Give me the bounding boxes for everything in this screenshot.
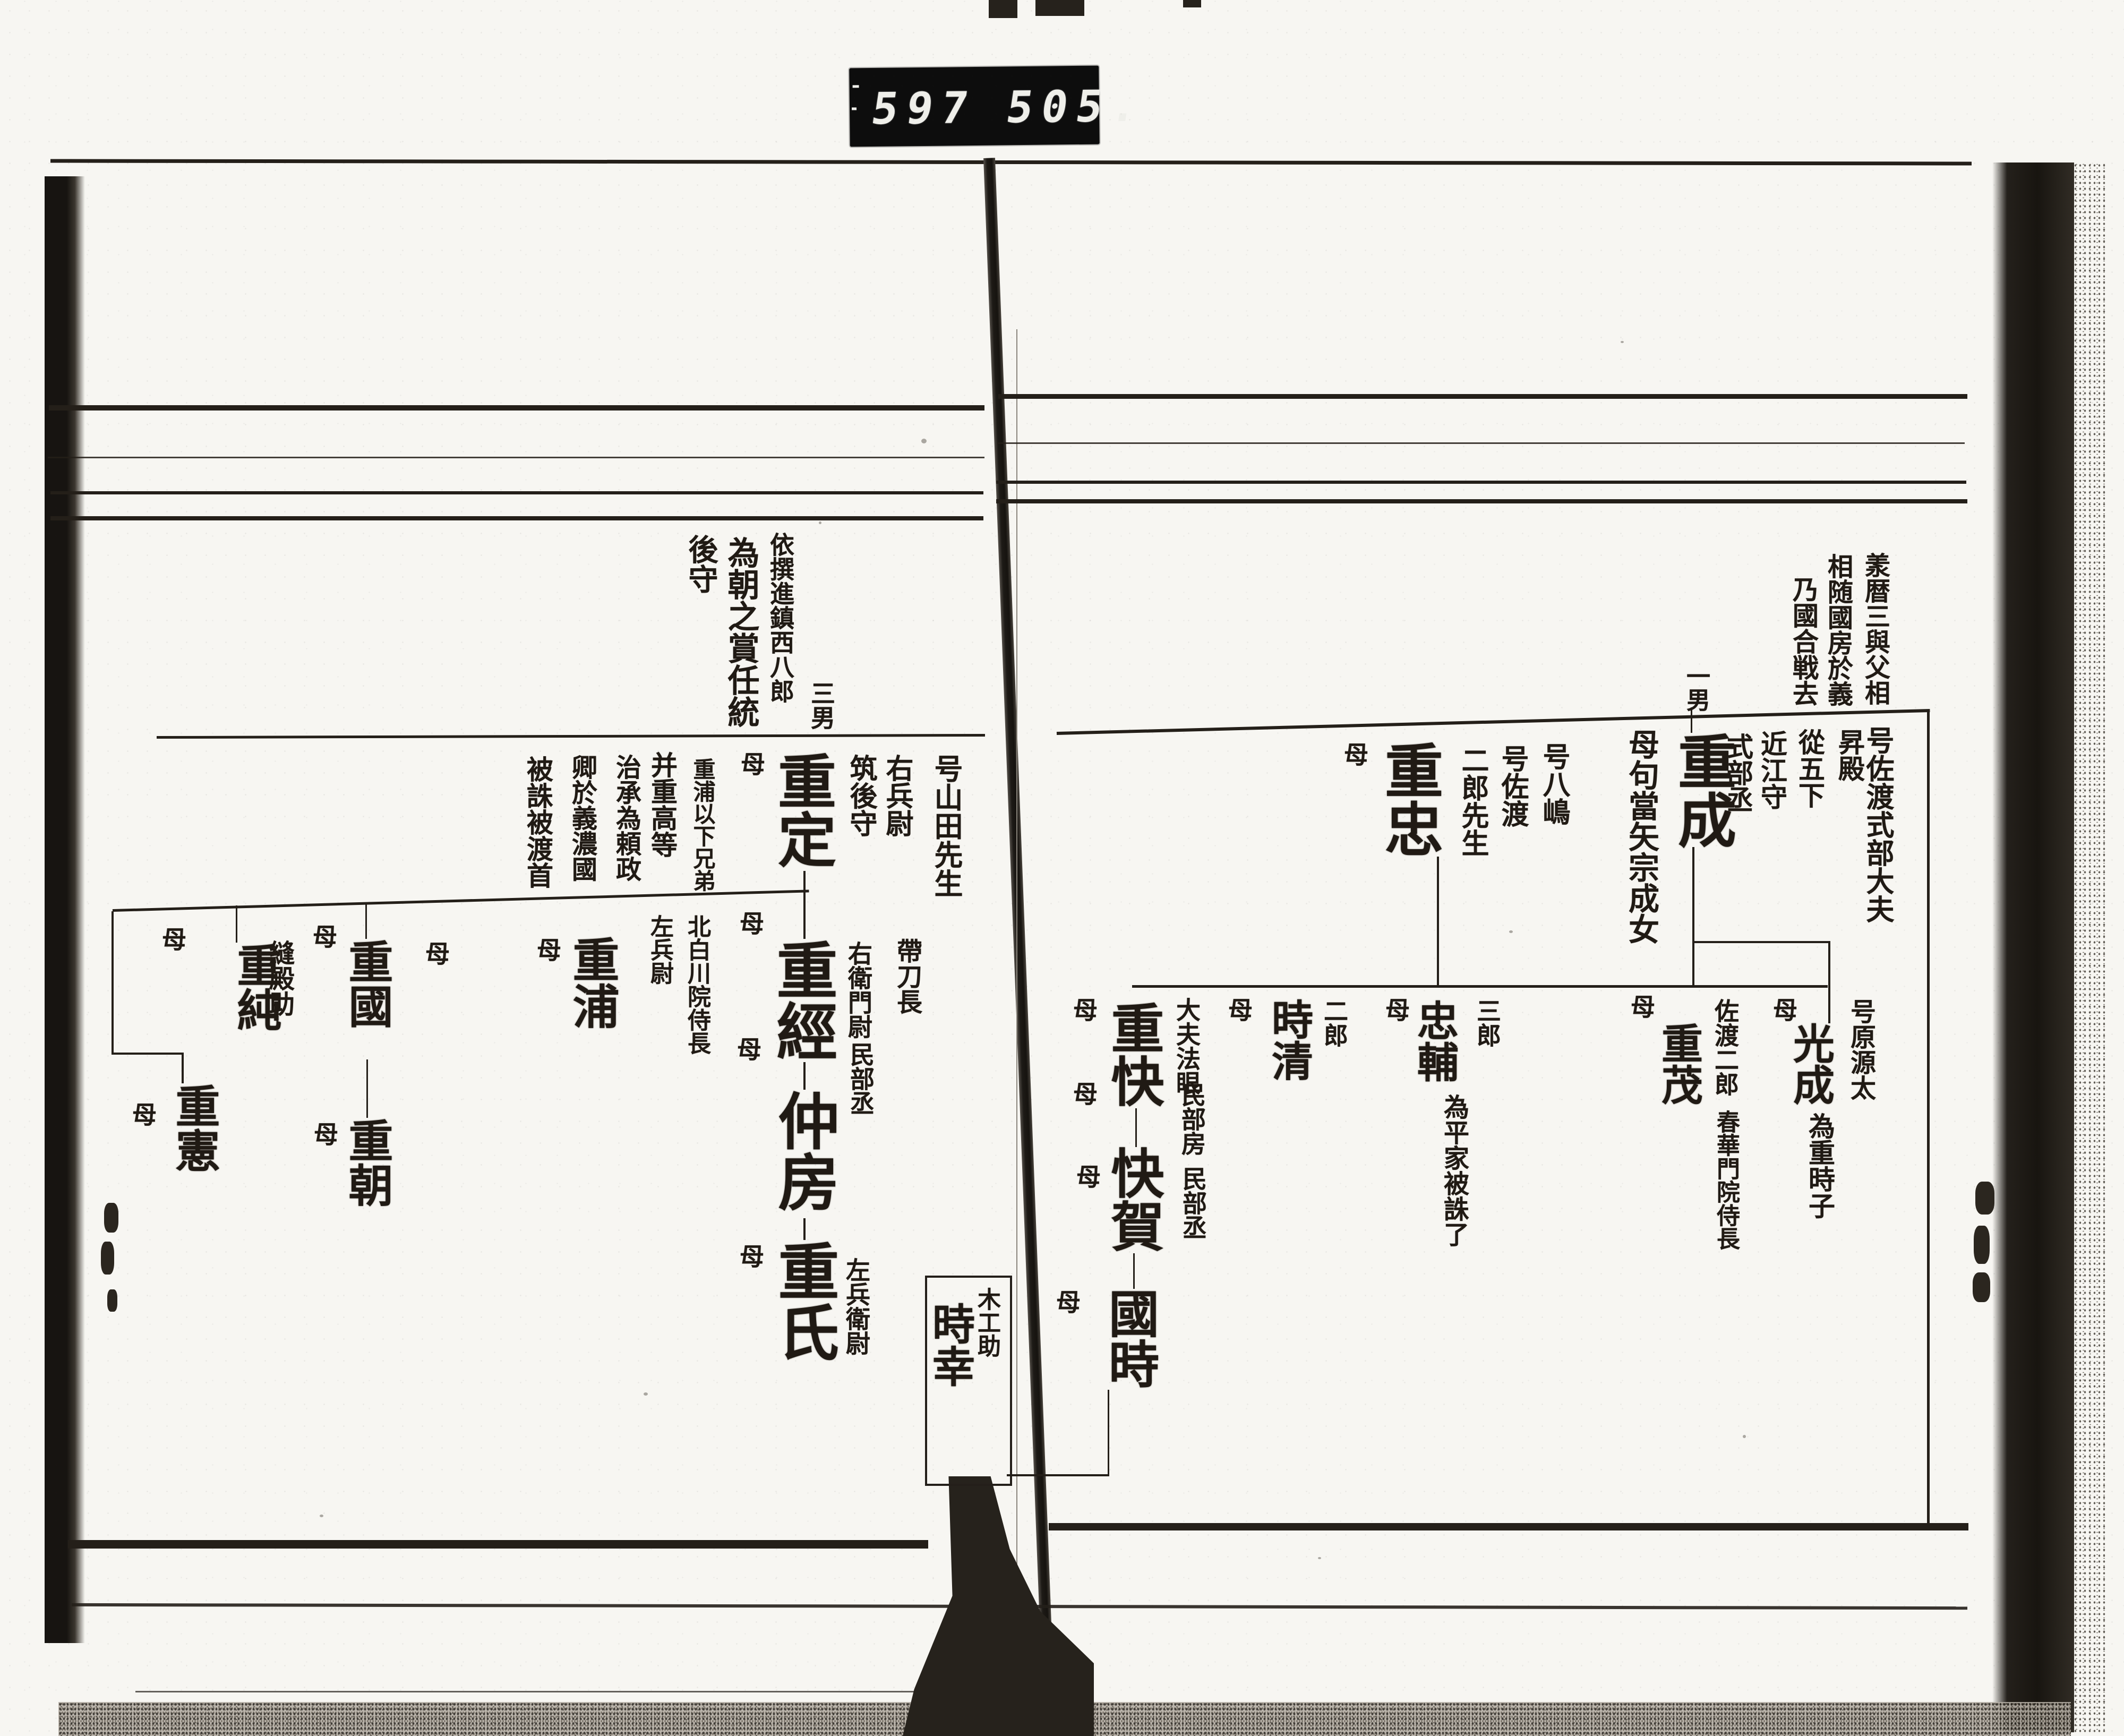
mother-mark: 母 xyxy=(1055,1289,1079,1314)
name-tokiyuki: 時幸 xyxy=(929,1302,972,1387)
father-title: 近江守 xyxy=(1759,730,1785,810)
top-edge-tab xyxy=(989,0,1017,18)
connector xyxy=(365,903,367,939)
left-book-edge-band xyxy=(45,176,85,1643)
note-tadasuke: 為平家被誅了 xyxy=(1441,1094,1467,1247)
title-shigesada: 筑後守 xyxy=(847,754,875,837)
name-tadasuke: 忠輔 xyxy=(1414,999,1455,1082)
rank-label: 一男 xyxy=(1684,664,1708,712)
note-col: 後守 xyxy=(686,534,716,594)
mother-mark: 母 xyxy=(1072,997,1096,1022)
title-shigeuji: 左兵衛尉 xyxy=(844,1258,869,1355)
connector-tokiyuki xyxy=(1007,1474,1109,1476)
counter-right-digits: 505. xyxy=(1003,81,1150,133)
edge-text-fragment xyxy=(101,1242,114,1275)
father-title: 昇殿 xyxy=(1836,729,1863,782)
connector xyxy=(803,1062,806,1090)
rank-label: 二郎 xyxy=(1322,998,1347,1047)
connector xyxy=(803,1218,806,1240)
executed-note-col: 卿於義濃國 xyxy=(569,754,595,882)
counter-stamp: 597 505. xyxy=(849,66,1100,147)
mother-mark: 母 xyxy=(738,1244,763,1268)
branch-mitsunari xyxy=(1693,941,1830,943)
edge-text-fragment xyxy=(1974,1226,1990,1264)
under-sheet-edge xyxy=(135,1691,964,1692)
frame-line-bottom xyxy=(68,1540,928,1549)
note-col: 為朝之賞任統 xyxy=(725,536,757,728)
mother-mark: 母 xyxy=(535,937,560,962)
alias-shigetada: 号佐渡 xyxy=(1498,745,1526,827)
alias-shigetada: 号八嶋 xyxy=(1540,742,1568,825)
edge-text-fragment xyxy=(107,1289,117,1312)
title-tokiyuki: 木工助 xyxy=(975,1287,998,1357)
title-shigemochi: 春華門院侍長 xyxy=(1714,1110,1737,1250)
edge-text-fragment xyxy=(1975,1182,1994,1215)
alias-shigesada: 号山田先生 xyxy=(932,754,961,897)
rank-label: 二郎先生 xyxy=(1459,746,1486,857)
mother-mark: 母 xyxy=(735,1037,760,1061)
edge-text-fragment xyxy=(1973,1272,1990,1302)
mother-mark: 母 xyxy=(739,751,764,776)
scanned-genealogy-page: 597 505. xyxy=(0,0,2124,1736)
executed-note-col: 治承為頼政 xyxy=(613,754,639,882)
mother-mark: 母 xyxy=(1342,742,1367,766)
name-nakafusa: 仲房 xyxy=(773,1090,834,1212)
rank-label: 三郎 xyxy=(1475,998,1500,1047)
name-shigenari: 重成 xyxy=(1673,732,1731,849)
connector xyxy=(366,1059,368,1118)
executed-note-col: 重浦以下兄弟 xyxy=(691,758,714,892)
note-mitsunari: 為重時子 xyxy=(1806,1113,1833,1219)
title-shigeura: 左兵尉 xyxy=(648,914,671,985)
connector xyxy=(236,905,237,943)
connector-shigetada-drop xyxy=(1437,857,1439,986)
mother-note-shigenari: 母句當矢宗成女 xyxy=(1626,729,1657,944)
mother-mark: 母 xyxy=(1227,997,1251,1022)
edge-text-fragment xyxy=(104,1203,118,1233)
executed-note-col: 并重高等 xyxy=(649,751,675,858)
name-shigetada: 重忠 xyxy=(1380,741,1438,858)
name-shigetomo: 重朝 xyxy=(345,1118,390,1207)
frame-line-bottom xyxy=(1049,1523,1968,1530)
rank-label: 三男 xyxy=(809,681,834,730)
father-title: 号佐渡式部大夫 xyxy=(1864,726,1892,923)
right-frame-rule xyxy=(1927,710,1930,1525)
connector-shigesada-drop xyxy=(803,871,806,939)
mother-mark: 母 xyxy=(1072,1081,1096,1106)
name-shigeyoshi: 重快 xyxy=(1107,1001,1160,1107)
note-col: 依撰進鎮西八郎 xyxy=(768,532,793,703)
top-edge-tab xyxy=(1035,0,1084,16)
fold-line xyxy=(1016,329,1017,1604)
frame-line xyxy=(48,457,984,458)
connector xyxy=(1135,1108,1137,1147)
mother-mark: 母 xyxy=(424,941,448,965)
name-tokikiyo: 時清 xyxy=(1268,998,1309,1081)
mother-mark: 母 xyxy=(160,927,185,951)
title-kaiga: 民部房 xyxy=(1180,1082,1204,1156)
mother-mark: 母 xyxy=(312,1122,337,1146)
frame-line xyxy=(50,516,983,520)
mother-mark: 母 xyxy=(1384,997,1408,1022)
mother-mark: 母 xyxy=(738,911,763,935)
name-mitsunari: 光成 xyxy=(1789,1022,1831,1105)
title-kunitoki: 民部丞 xyxy=(1181,1166,1205,1239)
title-shigetsune: 帶刀長 xyxy=(894,938,920,1014)
frame-line xyxy=(50,491,983,494)
frame-line xyxy=(996,481,1966,484)
title-shigeyoshi: 大夫法眼 xyxy=(1175,997,1199,1095)
page-top-edge xyxy=(50,159,1972,165)
title-nakafusa: 民部丞 xyxy=(849,1042,873,1115)
title-shigesada: 右兵尉 xyxy=(883,754,911,837)
executed-note-col: 被誅被渡首 xyxy=(525,756,551,888)
name-shigezumi: 重純 xyxy=(234,943,278,1032)
note-col: 羕暦三與父相 xyxy=(1862,552,1888,705)
name-shigemochi: 重茂 xyxy=(1658,1022,1699,1105)
right-edge-speckle xyxy=(2073,163,2107,1732)
title-shigeura: 北白川院侍長 xyxy=(685,914,708,1055)
name-kaiga: 快賀 xyxy=(1107,1146,1160,1252)
mother-mark: 母 xyxy=(1629,994,1654,1019)
note-col: 乃國合戦去 xyxy=(1791,576,1817,706)
frame-line xyxy=(49,405,984,411)
mother-mark: 母 xyxy=(311,924,336,948)
connector-shigenari-drop xyxy=(1692,847,1694,986)
name-shigetsune: 重經 xyxy=(772,939,833,1061)
frame-line xyxy=(996,499,1967,503)
connector-mitsunari-drop xyxy=(1828,942,1830,1023)
connector xyxy=(1133,1253,1135,1289)
note-col: 相随國房於義 xyxy=(1825,553,1851,706)
title-shigemochi: 佐渡二郎 xyxy=(1713,998,1737,1096)
frame-line xyxy=(998,394,1967,399)
name-shigesada: 重定 xyxy=(773,751,831,868)
name-shigeuji: 重氏 xyxy=(773,1240,834,1362)
dogleg-horizontal xyxy=(112,1053,184,1055)
children-line-right xyxy=(1132,985,1828,988)
name-shigekuni: 重國 xyxy=(345,939,390,1028)
mother-mark: 母 xyxy=(131,1102,155,1126)
frame-line xyxy=(997,442,1965,444)
children-line-left xyxy=(113,890,809,912)
dogleg-drop xyxy=(182,1053,184,1083)
counter-left-digits: 597 xyxy=(868,83,980,134)
dogleg-vertical xyxy=(112,911,114,1055)
name-shigeura: 重浦 xyxy=(569,936,616,1029)
connector-kunitoki-drop xyxy=(1108,1390,1109,1476)
mother-mark: 母 xyxy=(1771,997,1796,1022)
generation-line-left xyxy=(157,734,985,739)
name-kunitoki: 國時 xyxy=(1104,1288,1155,1389)
name-shigenori: 重憲 xyxy=(172,1083,217,1173)
title-shigetsune: 右衛門尉 xyxy=(846,941,871,1039)
mother-mark: 母 xyxy=(1075,1164,1099,1188)
father-title: 從五下 xyxy=(1796,729,1823,808)
alias-mitsunari: 号原源太 xyxy=(1848,998,1873,1100)
right-book-edge-band xyxy=(1992,163,2074,1732)
top-edge-tab xyxy=(1183,0,1201,7)
